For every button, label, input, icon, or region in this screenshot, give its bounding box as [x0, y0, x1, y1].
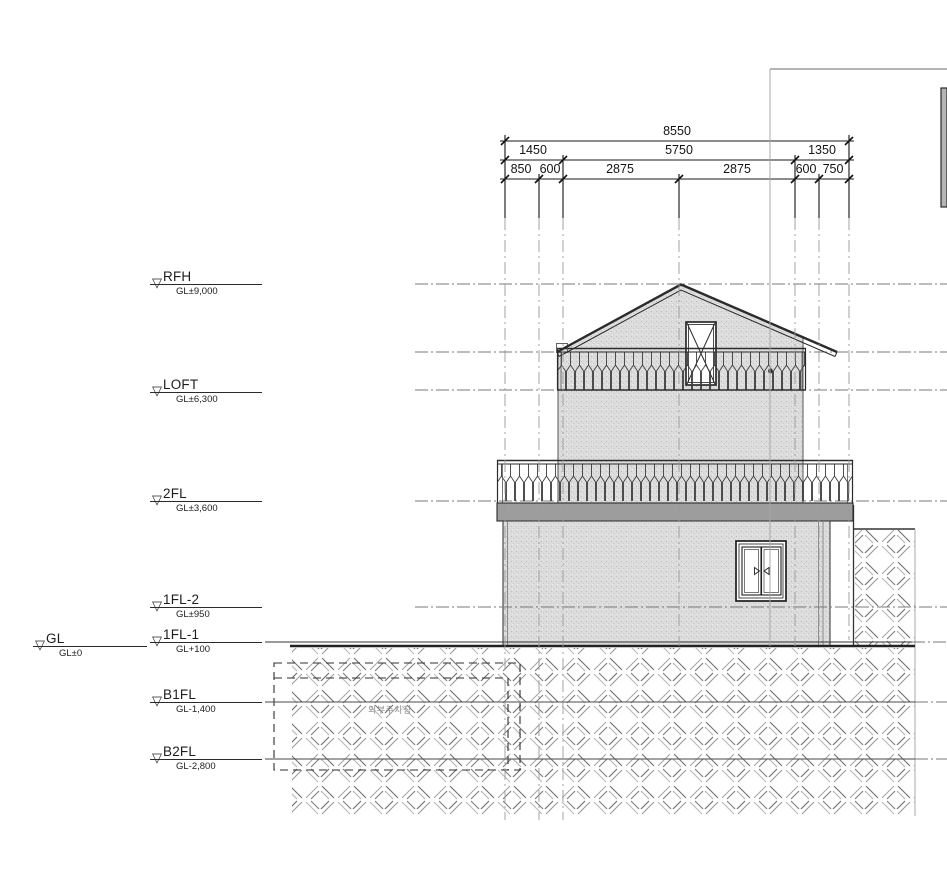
level-triangle-icon: ▽ [152, 601, 162, 611]
dim-2875-right: 2875 [723, 162, 751, 176]
level-marker-2fl: ▽2FL GL±3,600 [150, 484, 262, 514]
dim-750: 750 [823, 162, 844, 176]
dim-5750: 5750 [665, 143, 693, 157]
balcony-railing [497, 460, 853, 503]
dim-1350: 1350 [808, 143, 836, 157]
level-triangle-icon: ▽ [152, 495, 162, 505]
dim-1450: 1450 [519, 143, 547, 157]
dim-600-right: 600 [796, 162, 817, 176]
level-triangle-icon: ▽ [152, 278, 162, 288]
cad-linework [0, 0, 947, 874]
dim-2875-left: 2875 [606, 162, 634, 176]
dim-850: 850 [511, 162, 532, 176]
level-triangle-icon: ▽ [35, 640, 45, 650]
right-bank-soil-hatch [855, 529, 915, 646]
level-marker-gl: ▽GL GL±0 [33, 629, 147, 659]
neighbor-drawing-wall-fragment [941, 88, 947, 207]
floor-slab [497, 503, 853, 521]
first-floor-window [736, 541, 786, 601]
underground-soil-hatch [292, 648, 915, 816]
level-triangle-icon: ▽ [152, 386, 162, 396]
level-marker-b1fl: ▽B1FL GL-1,400 [150, 685, 262, 715]
level-marker-1fl2: ▽1FL-2 GL±950 [150, 590, 262, 620]
level-triangle-icon: ▽ [152, 636, 162, 646]
level-marker-loft: ▽LOFT GL±6,300 [150, 375, 262, 405]
level-triangle-icon: ▽ [152, 753, 162, 763]
neighbor-sheet-frame [770, 69, 947, 207]
parking-label: 외부주차장 [368, 705, 412, 715]
level-marker-rfh: ▽RFH GL±9,000 [150, 267, 262, 297]
building-elevation [497, 285, 853, 647]
dim-total: 8550 [663, 124, 691, 138]
level-triangle-icon: ▽ [152, 696, 162, 706]
level-marker-b2fl: ▽B2FL GL-2,800 [150, 742, 262, 772]
level-marker-1fl1: ▽1FL-1 GL+100 [150, 625, 262, 655]
dim-600-left: 600 [540, 162, 561, 176]
elevation-drawing-sheet: ▽RFH GL±9,000 ▽LOFT GL±6,300 ▽2FL GL±3,6… [0, 0, 947, 874]
